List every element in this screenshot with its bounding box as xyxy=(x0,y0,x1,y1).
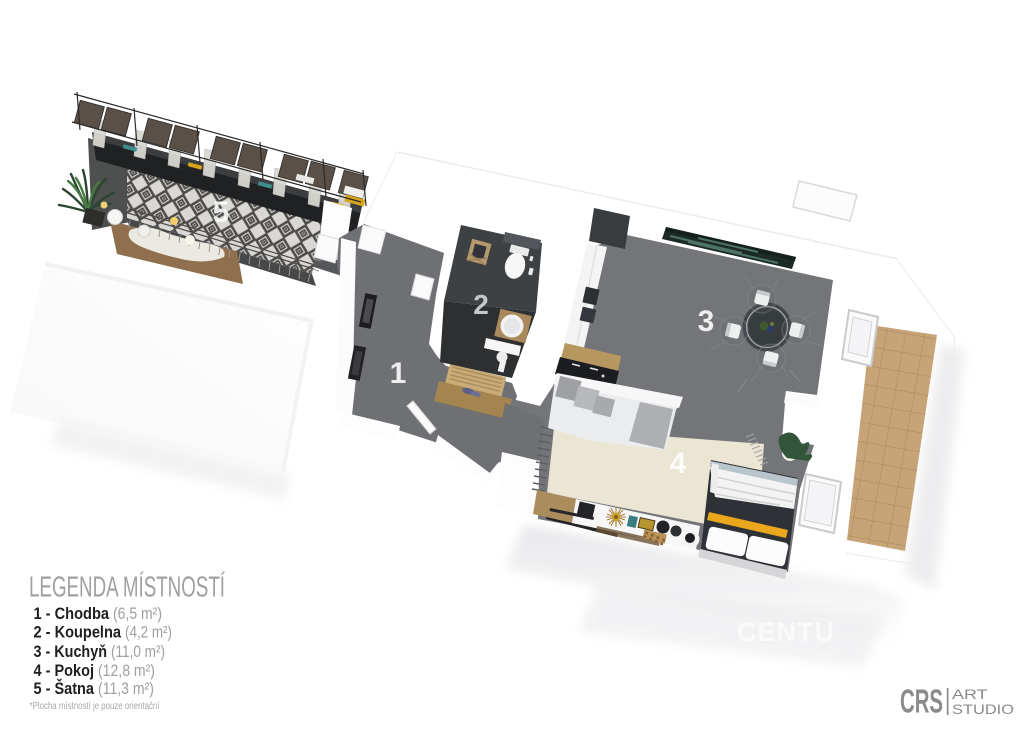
svg-text:2: 2 xyxy=(473,289,489,320)
svg-text:(12,8 m²): (12,8 m²) xyxy=(98,661,155,680)
svg-text:5: 5 xyxy=(213,196,230,229)
svg-text:(6,5 m²): (6,5 m²) xyxy=(113,604,162,623)
svg-text:STUDIO: STUDIO xyxy=(952,701,1014,717)
svg-text:ART: ART xyxy=(952,686,988,702)
svg-text:CENTU: CENTU xyxy=(737,617,835,647)
svg-text:(11,3 m²): (11,3 m²) xyxy=(98,679,154,698)
svg-text:5 - Šatna: 5 - Šatna xyxy=(34,679,95,698)
svg-text:(11,0 m²): (11,0 m²) xyxy=(111,642,165,661)
svg-text:2 - Koupelna: 2 - Koupelna xyxy=(34,623,122,642)
svg-text:(4,2 m²): (4,2 m²) xyxy=(125,623,172,642)
svg-text:1: 1 xyxy=(390,357,407,390)
svg-text:4 - Pokoj: 4 - Pokoj xyxy=(34,661,95,680)
svg-text:3 - Kuchyň: 3 - Kuchyň xyxy=(34,642,108,661)
svg-text:*Plocha místností je pouze ori: *Plocha místností je pouze orientační xyxy=(30,701,160,712)
svg-text:1 - Chodba: 1 - Chodba xyxy=(34,604,110,623)
svg-text:4: 4 xyxy=(670,447,687,480)
svg-text:3: 3 xyxy=(698,305,715,338)
svg-text:CRS: CRS xyxy=(900,683,943,720)
svg-text:LEGENDA MÍSTNOSTÍ: LEGENDA MÍSTNOSTÍ xyxy=(29,571,226,604)
